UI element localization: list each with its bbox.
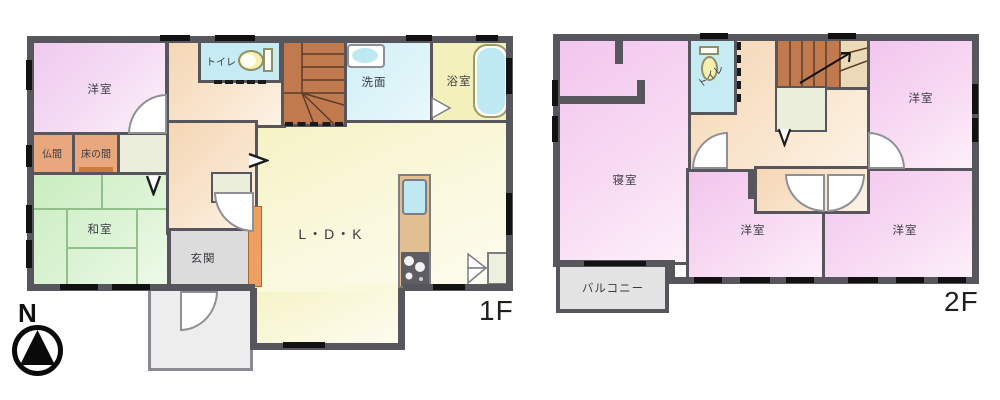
bathtub-water-icon bbox=[477, 48, 505, 114]
wall-segment bbox=[398, 288, 405, 350]
north-compass-icon bbox=[11, 324, 64, 377]
wall-segment bbox=[972, 34, 979, 284]
dashed-opening bbox=[285, 122, 343, 126]
window-mark bbox=[26, 60, 32, 90]
window-mark bbox=[584, 261, 646, 266]
stove-icon bbox=[401, 252, 429, 286]
room-label-balcony: バルコニー bbox=[582, 280, 644, 296]
room-label-western-1f: 洋室 bbox=[88, 81, 113, 97]
wall-segment bbox=[553, 34, 560, 267]
window-mark bbox=[26, 145, 32, 167]
wall-segment bbox=[748, 171, 755, 199]
room-label-butsuma: 仏間 bbox=[42, 146, 62, 161]
window-mark bbox=[896, 277, 924, 283]
folding-door-icon bbox=[777, 128, 792, 147]
bath-door-icon bbox=[430, 96, 452, 120]
room-label-toilet-1f: トイレ bbox=[206, 54, 236, 69]
room-label-bathroom: 浴室 bbox=[447, 73, 472, 89]
window-mark bbox=[972, 118, 978, 142]
toilet-tank-icon bbox=[263, 48, 273, 72]
window-mark bbox=[60, 284, 98, 290]
stove-burners bbox=[401, 252, 429, 286]
floor2-label: 2F bbox=[944, 286, 979, 318]
window-mark bbox=[552, 116, 558, 142]
room-label-japanese: 和室 bbox=[88, 221, 113, 237]
tatami-line bbox=[66, 247, 138, 249]
window-mark bbox=[506, 193, 512, 235]
wall-segment bbox=[250, 288, 257, 350]
window-mark bbox=[848, 277, 878, 283]
wall-segment bbox=[553, 34, 979, 41]
toilet-tank-icon bbox=[699, 46, 719, 55]
toilet-seat-icon bbox=[241, 54, 256, 67]
floor1-label: 1F bbox=[479, 295, 514, 327]
closet-1f-north bbox=[117, 132, 169, 175]
room-label-bedroom: 寝室 bbox=[613, 172, 638, 188]
room-bedroom bbox=[555, 38, 692, 265]
window-mark bbox=[828, 33, 856, 39]
stairs-1f-treads bbox=[284, 41, 344, 124]
room-label-tokonoma: 床の間 bbox=[81, 146, 111, 161]
stairs-2f bbox=[775, 38, 870, 90]
stairs-1f bbox=[281, 38, 347, 127]
room-label-ldk: L・D・K bbox=[298, 224, 363, 244]
window-mark bbox=[694, 277, 722, 283]
stairs-2f-treads bbox=[778, 41, 867, 87]
window-mark bbox=[283, 342, 325, 348]
window-mark bbox=[26, 240, 32, 268]
dashed-opening bbox=[214, 80, 266, 84]
wall-segment bbox=[556, 96, 645, 104]
kitchen-sink-icon bbox=[402, 179, 427, 215]
room-label-western-2f-mid: 洋室 bbox=[741, 222, 766, 238]
room-label-washroom: 洗面 bbox=[362, 74, 387, 90]
ldk-floor-patch bbox=[259, 282, 395, 292]
french-door-icon bbox=[466, 252, 488, 285]
tatami-line bbox=[101, 175, 103, 208]
window-mark bbox=[160, 35, 190, 41]
folding-door-icon bbox=[248, 152, 269, 169]
window-mark bbox=[786, 277, 814, 283]
closet-2f bbox=[775, 86, 827, 132]
window-mark bbox=[112, 284, 150, 290]
window-mark bbox=[26, 205, 32, 233]
sink-bowl-icon bbox=[352, 48, 378, 63]
window-mark bbox=[506, 58, 512, 94]
tatami-line bbox=[31, 208, 167, 210]
window-mark bbox=[406, 35, 432, 41]
room-label-western-2f-top: 洋室 bbox=[909, 90, 934, 106]
window-mark bbox=[700, 33, 728, 39]
room-label-entrance: 玄関 bbox=[191, 250, 216, 266]
window-mark bbox=[476, 35, 498, 41]
window-mark bbox=[215, 35, 255, 41]
wall-segment bbox=[637, 80, 645, 104]
floorplan-canvas: 洋室 トイレ 洗面 浴室 仏間 床の間 和室 玄関 L・D・K 1F bbox=[0, 0, 1000, 400]
dashed-opening bbox=[737, 42, 741, 102]
room-label-western-2f-right: 洋室 bbox=[893, 222, 918, 238]
room-ldk-extension bbox=[252, 286, 402, 348]
window-mark bbox=[938, 277, 966, 283]
window-mark bbox=[552, 80, 558, 106]
wall-segment bbox=[615, 38, 623, 64]
window-mark bbox=[433, 284, 465, 290]
window-mark bbox=[972, 84, 978, 114]
window-mark bbox=[740, 277, 770, 283]
wall-segment bbox=[250, 343, 405, 350]
wall-segment bbox=[668, 260, 675, 284]
folding-door-icon bbox=[145, 175, 162, 196]
wall-segment bbox=[27, 36, 513, 43]
